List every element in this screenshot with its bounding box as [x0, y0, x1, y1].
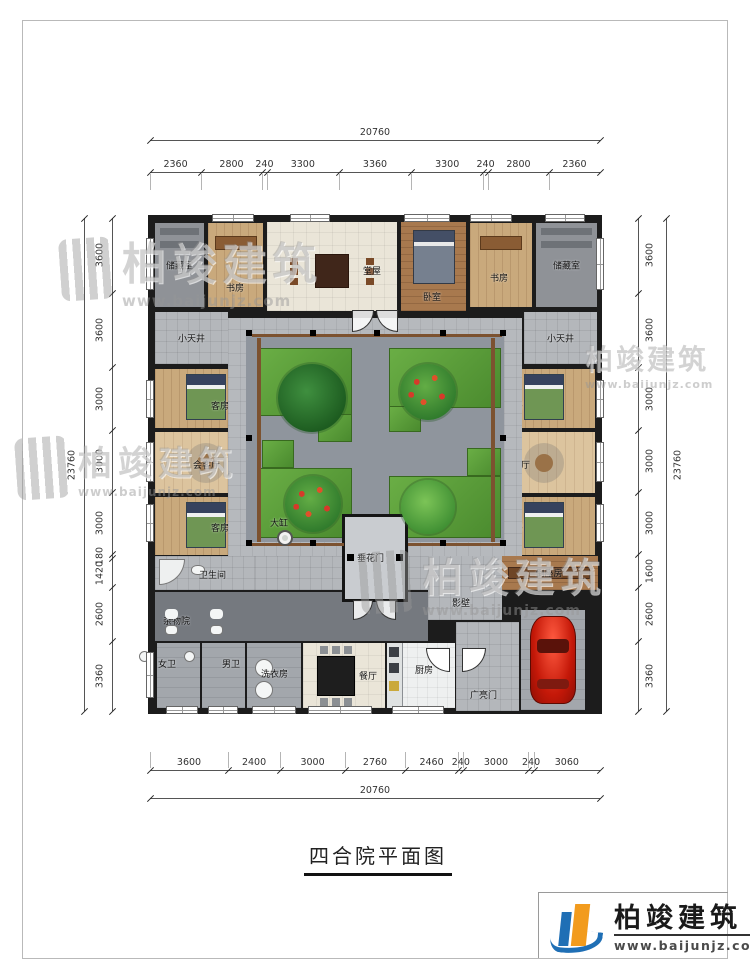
room-bedroom: 卧室: [401, 222, 466, 311]
room-storage-nw: 储藏室: [155, 223, 204, 307]
room-label: 广亮门: [470, 688, 497, 701]
furniture-dining: [317, 656, 355, 696]
dim-ext: [228, 752, 229, 768]
room-bathroom: 卫生间: [155, 556, 255, 590]
veranda-edge: [408, 543, 500, 546]
drawing-title: 四合院平面图: [304, 840, 452, 876]
room-dining: 餐厅: [303, 643, 385, 708]
titleblock-line-vertical: [538, 892, 539, 958]
tree: [278, 364, 346, 432]
room-storage-ne: 储藏室: [536, 223, 597, 307]
room-laundry: 洗衣房: [247, 643, 301, 708]
dim-number: 3600: [645, 318, 656, 342]
column: [246, 540, 252, 546]
furniture-desk: [215, 236, 257, 250]
furniture-kitchen: [387, 643, 403, 708]
room-study-ne: 书房: [470, 223, 532, 307]
veranda-edge: [491, 338, 495, 542]
brand-logo: 柏竣建筑 www.baijunjz.com: [552, 900, 750, 958]
dim-number: 20760: [360, 785, 390, 796]
room-toilet-men: 男卫: [202, 643, 245, 708]
dim-number: 20760: [360, 127, 390, 138]
tree: [401, 480, 455, 534]
furniture-bed: [524, 502, 564, 548]
column: [440, 540, 446, 546]
column: [310, 330, 316, 336]
dim-line: [666, 218, 667, 711]
window: [404, 214, 450, 222]
furniture-desk: [480, 236, 522, 250]
dim-ext: [411, 174, 412, 190]
room-daozuo: 倒座房: [500, 556, 598, 590]
brand-name: 柏竣建筑: [614, 905, 750, 933]
water-vat: [277, 530, 293, 546]
window: [146, 652, 154, 698]
room-label: 厨房: [415, 663, 433, 676]
festoon-gate: 垂花门: [342, 514, 408, 602]
room-label: 储藏室: [553, 259, 580, 272]
titleblock-line-horizontal: [538, 892, 728, 893]
room-label: 影壁: [452, 596, 470, 609]
furniture-hall: [315, 254, 349, 288]
furniture-sofa: [535, 454, 553, 472]
drawing-title-text: 四合院平面图: [304, 840, 452, 869]
dim-number: 3000: [95, 511, 106, 535]
column: [500, 435, 506, 441]
dim-ext: [345, 752, 346, 768]
window: [392, 706, 444, 714]
dim-number: 3000: [95, 449, 106, 473]
column: [374, 330, 380, 336]
window: [470, 214, 512, 222]
logo-swoosh: [549, 927, 603, 956]
window: [212, 214, 254, 222]
window: [596, 442, 604, 482]
dim-number: 3300: [291, 159, 315, 170]
dim-number: 2460: [419, 757, 443, 768]
vat-label: 大缸: [270, 516, 288, 529]
dim-line: [84, 218, 85, 711]
room-patio-w: 小天井: [155, 312, 228, 364]
brand-logo-icon: [552, 900, 604, 958]
dim-number: 3000: [95, 386, 106, 410]
tree: [285, 476, 341, 532]
dim-number: 2600: [95, 602, 106, 626]
room-label: 餐厅: [359, 669, 377, 682]
furniture-bigbed: [413, 230, 455, 284]
dim-number: 3000: [645, 386, 656, 410]
window: [596, 504, 604, 542]
dim-number: 2400: [242, 757, 266, 768]
dim-number: 2800: [219, 159, 243, 170]
dim-number: 3600: [177, 757, 201, 768]
dim-number: 3360: [645, 664, 656, 688]
dim-ext: [280, 752, 281, 768]
room-main-hall: 堂屋: [267, 222, 397, 311]
room-label: 女卫: [158, 657, 176, 670]
column: [246, 435, 252, 441]
dim-number: 3600: [95, 318, 106, 342]
dim-number: 3000: [645, 511, 656, 535]
dim-ext: [267, 174, 268, 190]
room-label: 会客厅: [193, 458, 220, 471]
window: [290, 214, 330, 222]
window: [146, 380, 154, 418]
furniture-shelf: [160, 228, 199, 235]
dim-ext: [405, 752, 406, 768]
dim-ext: [549, 174, 550, 190]
dim-number: 2760: [363, 757, 387, 768]
room-label: 洗衣房: [261, 667, 288, 680]
window: [208, 706, 238, 714]
dim-number: 3600: [645, 243, 656, 267]
column: [500, 330, 506, 336]
dim-number: 2360: [562, 159, 586, 170]
dim-number: 2600: [645, 602, 656, 626]
room-label: 客房: [211, 399, 229, 412]
dim-ext: [483, 174, 484, 190]
dim-ext: [201, 174, 202, 190]
room-label: 卧室: [423, 290, 441, 303]
room-label: 倒座房: [535, 567, 562, 580]
dim-number: 240: [476, 159, 494, 170]
room-study-nw: 书房: [208, 223, 263, 307]
window: [545, 214, 585, 222]
dim-number: 3300: [435, 159, 459, 170]
window: [146, 504, 154, 542]
dim-number: 3000: [645, 449, 656, 473]
room-label: 书房: [490, 271, 508, 284]
dim-ext: [262, 174, 263, 190]
room-label: 客房: [211, 521, 229, 534]
furniture-shelf: [541, 228, 592, 235]
room-patio-e: 小天井: [524, 312, 597, 364]
dim-number: 3360: [95, 664, 106, 688]
room-label: 垂花门: [357, 551, 384, 564]
dim-number: 3000: [484, 757, 508, 768]
room-label: 男卫: [222, 657, 240, 670]
garden-bed: [467, 448, 501, 476]
furniture-car: [530, 616, 576, 704]
window: [166, 706, 198, 714]
room-label: 堂屋: [363, 264, 381, 277]
room-label: 小天井: [178, 332, 205, 345]
window: [146, 442, 154, 482]
window: [308, 706, 372, 714]
brand-url: www.baijunjz.com: [614, 934, 750, 953]
dim-ext: [150, 752, 151, 768]
dim-line: [150, 140, 600, 141]
passage-screenwall: 影壁: [428, 556, 502, 620]
column: [246, 330, 252, 336]
dim-number: 1420: [95, 561, 106, 585]
title-underline: [304, 873, 452, 876]
window: [596, 238, 604, 290]
window: [596, 380, 604, 418]
room-label: 卫生间: [199, 568, 226, 581]
furniture-bed: [186, 374, 226, 420]
dim-number: 240: [255, 159, 273, 170]
dim-number: 3060: [555, 757, 579, 768]
window: [146, 238, 154, 290]
dim-number: 2360: [163, 159, 187, 170]
column: [440, 330, 446, 336]
window: [252, 706, 296, 714]
dim-line: [150, 172, 600, 173]
dim-line: [150, 798, 600, 799]
room-label: 小天井: [547, 332, 574, 345]
room-label: 书房: [226, 281, 244, 294]
dim-number: 3000: [300, 757, 324, 768]
column: [500, 540, 506, 546]
dim-number: 23760: [67, 449, 78, 479]
main-gate: 广亮门: [456, 622, 519, 711]
dim-number: 240: [452, 757, 470, 768]
column: [310, 540, 316, 546]
dim-number: 3600: [95, 243, 106, 267]
dim-ext: [150, 174, 151, 190]
furniture-bed: [524, 374, 564, 420]
veranda-edge: [257, 338, 261, 542]
dim-number: 23760: [673, 449, 684, 479]
dim-ext: [339, 174, 340, 190]
garden-bed: [262, 440, 294, 468]
dim-ext: [488, 174, 489, 190]
garage: [521, 610, 585, 710]
veranda-edge: [252, 543, 344, 546]
dim-number: 1600: [645, 559, 656, 583]
tree: [400, 364, 456, 420]
room-label: 储藏室: [166, 259, 193, 272]
floor-plan-sheet: 储藏室书房堂屋卧室书房储藏室小天井小天井客房会客厅客房客房会客厅客房卫生间倒座房…: [0, 0, 750, 977]
dim-number: 3360: [363, 159, 387, 170]
dim-number: 2800: [506, 159, 530, 170]
